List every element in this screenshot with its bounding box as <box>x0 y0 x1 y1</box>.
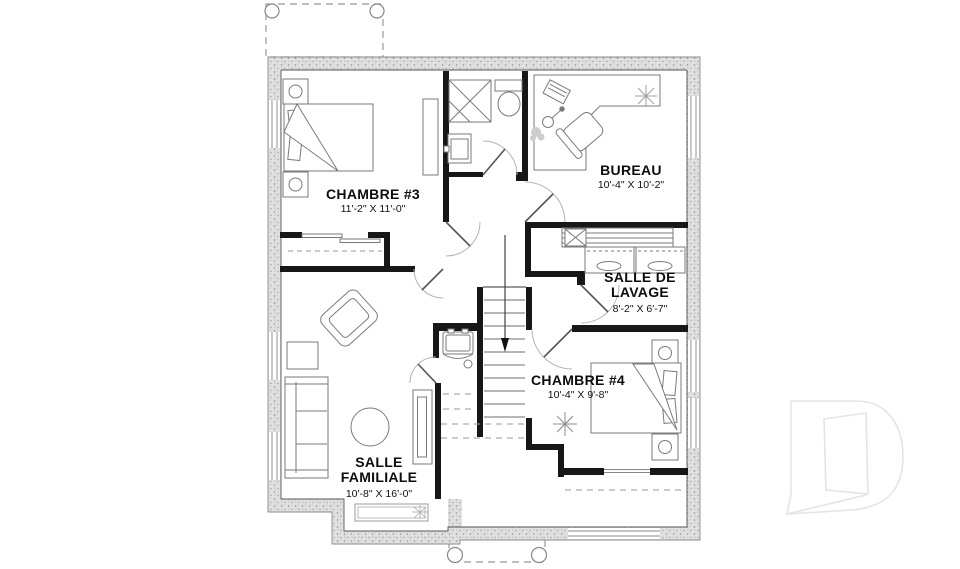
stairs-down-arrow-icon <box>501 235 509 352</box>
room-label-salle-familiale: SALLE FAMILIALE <box>329 455 429 485</box>
toilet-icon <box>495 80 522 116</box>
floorplan-drawing <box>0 0 960 569</box>
room-dims-chambre4: 10'-4" X 9'-8" <box>548 389 609 401</box>
plant-icon <box>635 85 657 107</box>
nightstand-icon <box>652 434 678 460</box>
shower-icon <box>449 80 491 122</box>
room-dims-salle-de-lavage: 8'-2" X 6'-7" <box>613 303 668 315</box>
round-table-icon <box>351 408 389 446</box>
laundry-fixtures <box>562 228 685 273</box>
laundry-tub <box>443 329 473 368</box>
bed-icon <box>284 104 373 171</box>
room-label-chambre3: CHAMBRE #3 <box>326 187 420 202</box>
nightstand-icon <box>283 79 308 104</box>
nightstand-icon <box>283 172 308 197</box>
room-label-salle-de-lavage: SALLE DE LAVAGE <box>592 270 688 300</box>
room-dims-bureau: 10'-4" X 10'-2" <box>598 179 664 191</box>
brand-watermark-d-logo <box>787 401 903 514</box>
floor-drain-icon <box>464 360 472 368</box>
room-dims-chambre3: 11'-2" X 11'-0" <box>341 203 406 215</box>
room-label-bureau: BUREAU <box>600 163 662 178</box>
deck-outline-top <box>265 4 384 57</box>
bureau-furniture <box>530 75 660 170</box>
chambre3-furniture <box>283 79 438 197</box>
room-dims-salle-familiale: 10'-8" X 16'-0" <box>346 488 412 500</box>
bathroom-fixtures <box>444 80 522 163</box>
floorplan-canvas: CHAMBRE #3 11'-2" X 11'-0" BUREAU 10'-4"… <box>0 0 960 569</box>
shelves-icon <box>562 228 673 247</box>
plant-icon <box>553 412 577 436</box>
side-table-icon <box>287 342 318 369</box>
room-label-chambre4: CHAMBRE #4 <box>531 373 625 388</box>
sofa-icon <box>285 377 328 478</box>
sink-icon <box>444 134 471 163</box>
closet-doors <box>288 234 382 251</box>
tv-console-icon <box>413 390 432 464</box>
armchair-icon <box>318 287 380 349</box>
dresser-icon <box>423 99 438 175</box>
nightstand-icon <box>652 340 678 366</box>
window-well <box>355 504 428 521</box>
